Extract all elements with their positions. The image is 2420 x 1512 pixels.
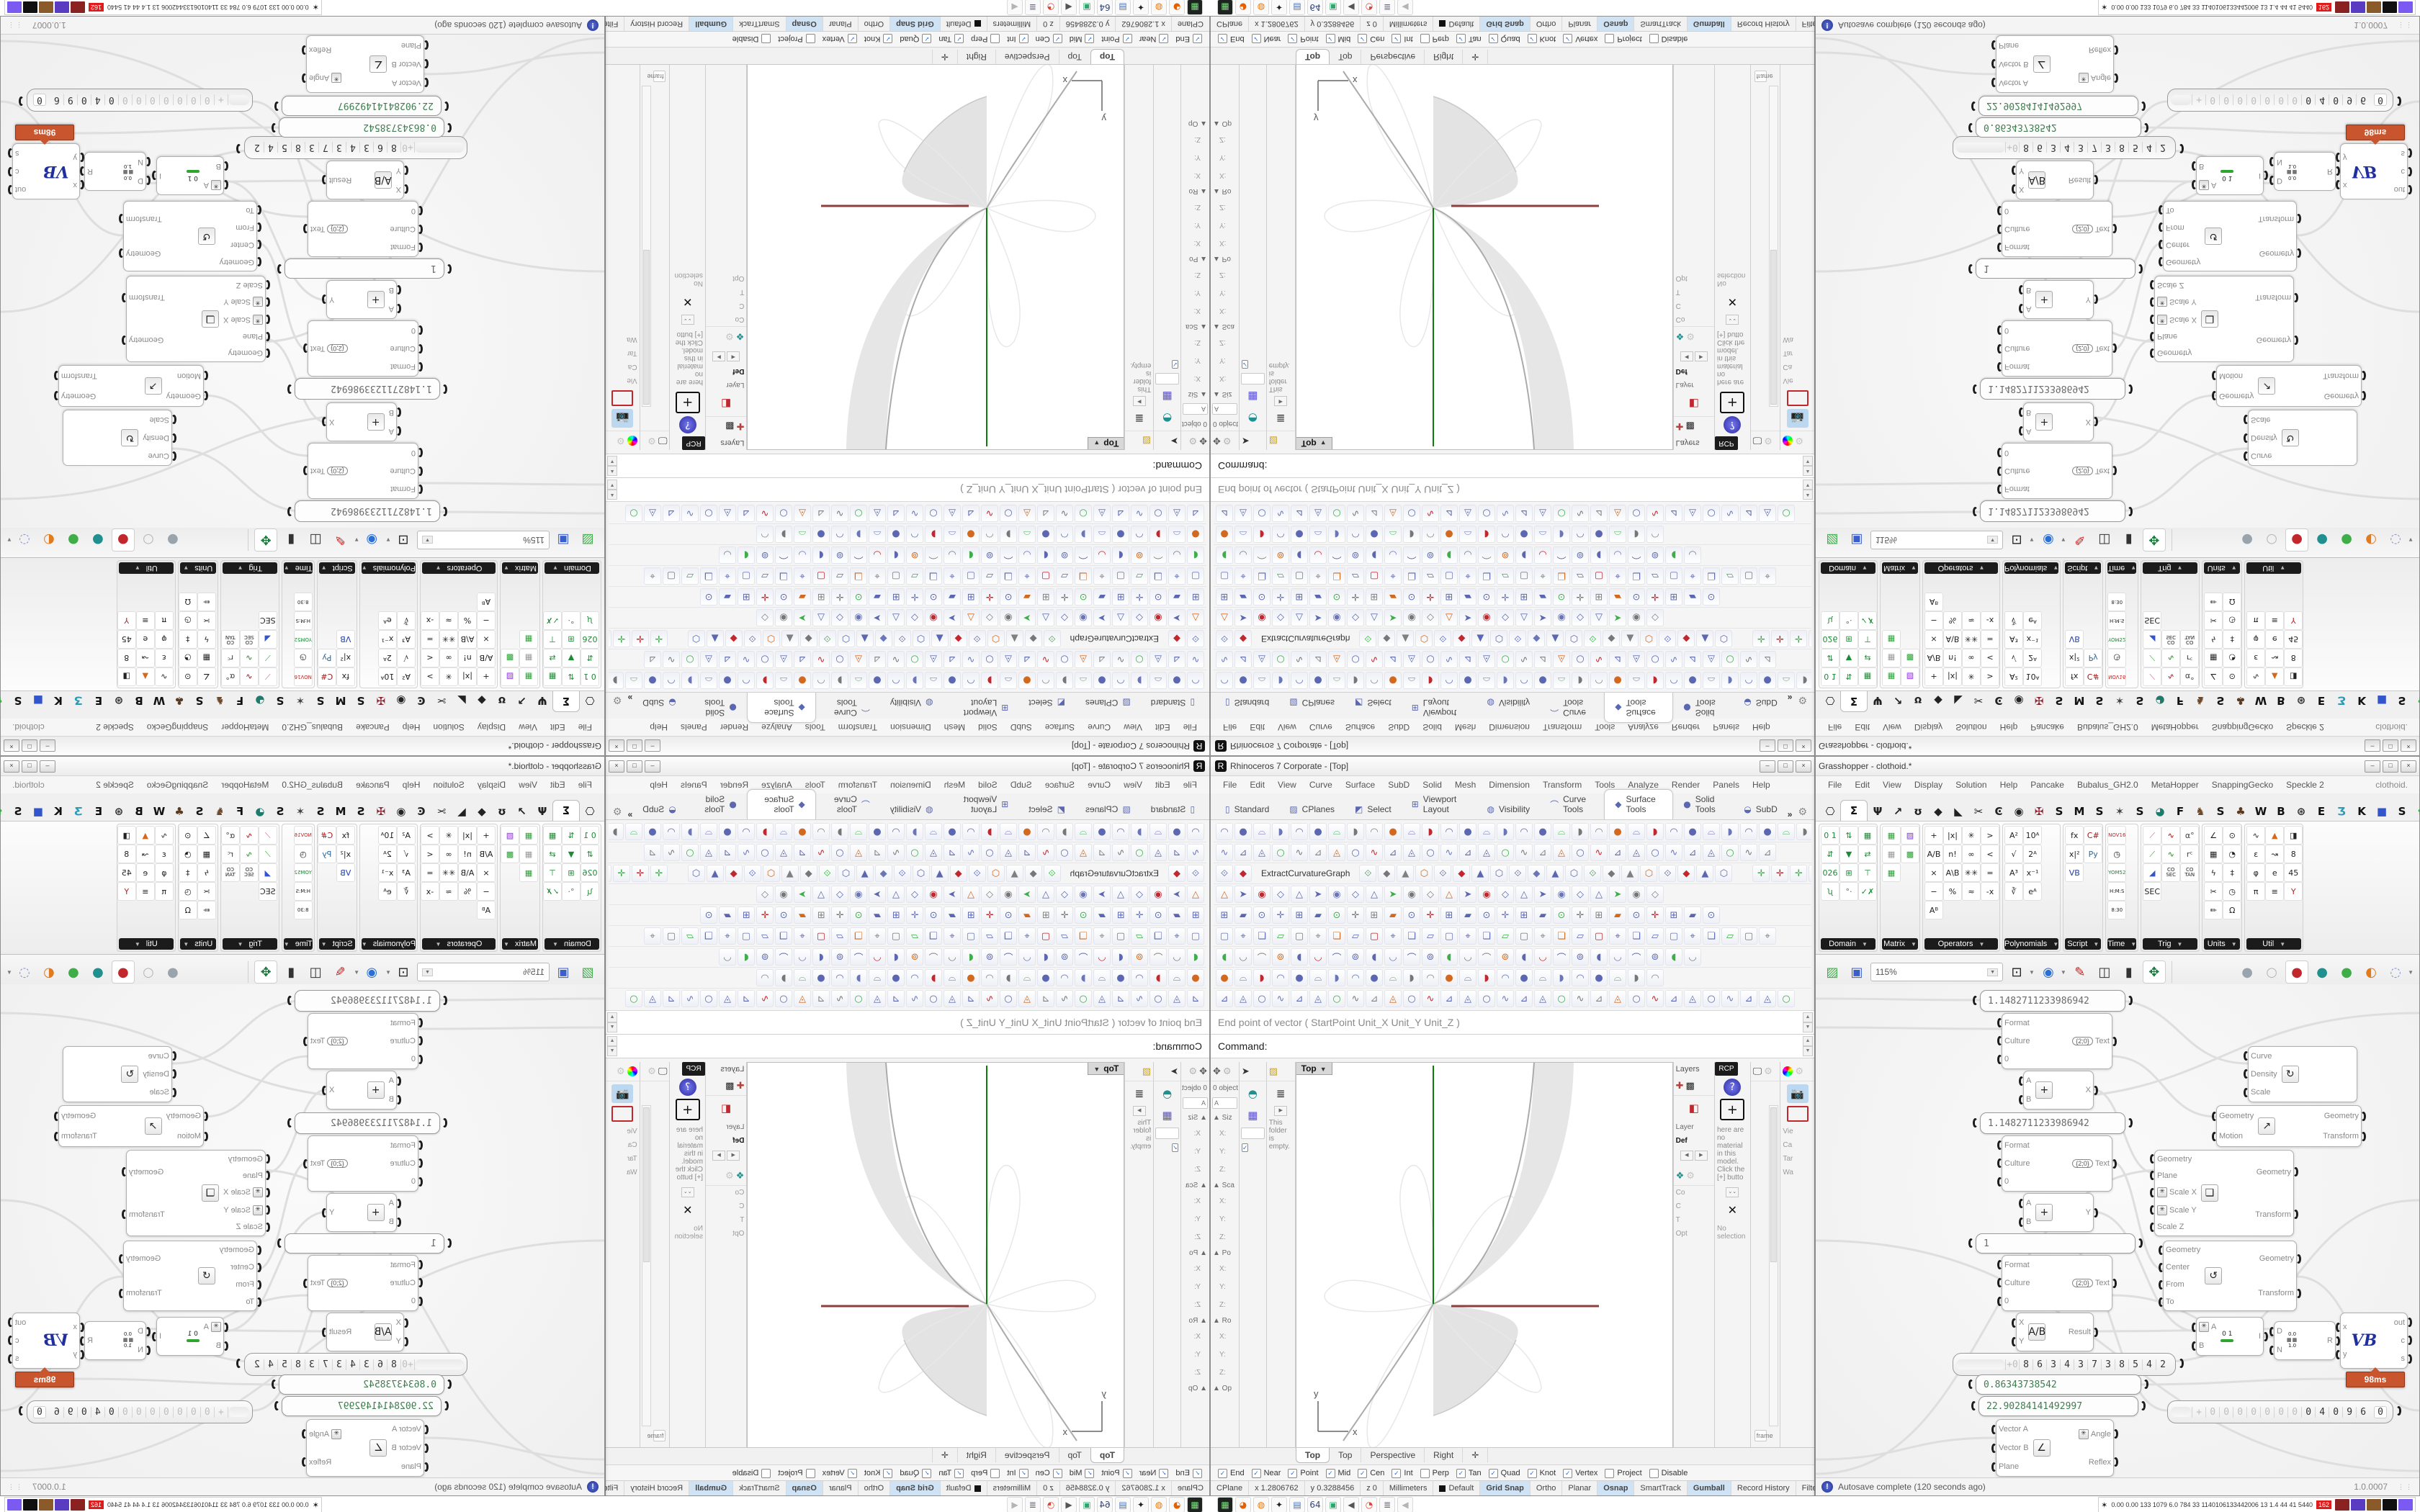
osnap-end[interactable]: ✓End xyxy=(1175,35,1202,44)
gh-tab-5[interactable]: ◆ xyxy=(472,691,492,710)
toolbar-icon[interactable]: ◡ xyxy=(1093,948,1111,966)
toolbar-icon[interactable]: ∿ xyxy=(812,651,830,668)
component-icon[interactable]: A\B xyxy=(1943,863,1962,882)
axis-field-y[interactable]: Y: xyxy=(1181,1143,1209,1161)
toolbar-icon[interactable]: ⊙ xyxy=(1403,588,1420,606)
learn-checkbox[interactable]: ✓ xyxy=(1172,1143,1179,1152)
toolbar-icon[interactable]: ✛ xyxy=(1347,588,1364,606)
toolbar-icon[interactable]: ◖ xyxy=(1112,948,1129,966)
component-icon[interactable]: ✳✳ xyxy=(439,863,458,882)
toolbar-icon[interactable]: △ xyxy=(887,886,905,903)
toolbar-icon[interactable]: ◬ xyxy=(1018,505,1036,522)
gh-tab-28[interactable]: S xyxy=(2392,691,2412,710)
toolbar-icon[interactable]: ∿ xyxy=(887,651,905,668)
component-icon[interactable]: fx xyxy=(2065,667,2084,686)
toolbar-icon[interactable]: ● xyxy=(1309,823,1327,840)
taskbar-app-firefox[interactable]: ◕ xyxy=(1235,0,1251,15)
toolbar-icon[interactable]: ◆ xyxy=(1453,865,1470,882)
toolbar-icon[interactable]: ◡ xyxy=(1609,546,1626,564)
toolbar-icon[interactable]: ● xyxy=(1590,526,1608,543)
gh-tab-1[interactable]: Σ xyxy=(552,691,580,712)
open-file-button[interactable]: ▨ xyxy=(577,961,599,983)
component-icon[interactable]: ≡ xyxy=(2265,882,2284,901)
toolbar-icon[interactable]: ◬ xyxy=(719,990,736,1007)
toolbar-icon[interactable]: ▢ xyxy=(663,927,680,945)
component-icon[interactable]: ▦ xyxy=(1858,667,1877,686)
component-icon[interactable]: Y xyxy=(117,882,136,901)
toolbar-icon[interactable]: ▱ xyxy=(1056,927,1073,945)
ribbon-group-label[interactable]: Units▼ xyxy=(2204,562,2240,574)
component-icon[interactable]: √ xyxy=(2004,649,2023,667)
component-icon[interactable]: ▦ xyxy=(2204,845,2223,863)
toolbar-icon[interactable]: ▲ xyxy=(856,630,874,647)
component-icon[interactable]: A² xyxy=(2004,667,2023,686)
toolbar-icon[interactable]: ● xyxy=(1168,672,1186,689)
toolbar-icon[interactable]: ❏ xyxy=(1703,927,1720,945)
component-icon[interactable]: ▦ xyxy=(519,826,538,845)
axis-field-z[interactable]: Z: xyxy=(1181,1364,1209,1382)
toolbar-icon[interactable]: ● xyxy=(1093,823,1111,840)
gh-tab-17[interactable]: F xyxy=(2170,802,2190,821)
gh-tab-1[interactable]: Σ xyxy=(1840,691,1868,712)
toolbar-icon[interactable]: ⌓ xyxy=(1093,969,1111,986)
toolbar-icon[interactable]: ⊞ xyxy=(1216,588,1233,606)
toolbar-icon[interactable]: ∿ xyxy=(1037,844,1054,861)
toolbar-icon[interactable]: ◗ xyxy=(756,823,774,840)
toolbar-icon[interactable]: ⟐ xyxy=(1216,630,1233,647)
component-icon[interactable]: − xyxy=(477,611,496,630)
toolbar-icon[interactable]: ◗ xyxy=(681,823,699,840)
osnap-vertex[interactable]: ✓Vertex xyxy=(1563,35,1597,44)
toolbar-icon[interactable]: ◇ xyxy=(981,609,998,626)
toolbar-icon[interactable]: ⌓ xyxy=(1609,969,1626,986)
osnap-end[interactable]: ✓End xyxy=(1175,1469,1202,1478)
menu-item-speckle-2[interactable]: Speckle 2 xyxy=(2280,778,2331,792)
toolbar-icon[interactable]: ⌓ xyxy=(700,672,717,689)
component-icon[interactable]: ⊤ xyxy=(1858,863,1877,882)
toolbar-icon[interactable]: ⊿ xyxy=(1187,990,1204,1007)
toolbar-icon[interactable]: ❏ xyxy=(1628,927,1645,945)
component-icon[interactable]: A\B xyxy=(458,630,477,649)
toolbar-icon[interactable]: ❏ xyxy=(1478,567,1495,585)
toolbar-icon[interactable]: ◗ xyxy=(1131,823,1148,840)
toolbar-icon[interactable]: ⌓ xyxy=(1309,526,1327,543)
toolbar-icon[interactable]: ➤ xyxy=(944,609,961,626)
toolbar-icon[interactable]: ▲ xyxy=(1397,630,1414,647)
toolbar-icon[interactable]: ◬ xyxy=(1093,505,1111,522)
component-icon[interactable]: Aᴮ xyxy=(1924,901,1943,919)
toolbar-icon[interactable]: ⟐ xyxy=(819,865,836,882)
toolbar-icon[interactable]: ◗ xyxy=(1796,672,1811,689)
status-gumball[interactable]: Gumball xyxy=(689,1481,732,1495)
toolbar-icon[interactable]: ◆ xyxy=(1528,865,1545,882)
toolbar-icon[interactable]: ⌓ xyxy=(1609,526,1626,543)
status-smarttrack[interactable]: SmartTrack xyxy=(1634,1481,1687,1495)
axis-field-y[interactable]: Y: xyxy=(1211,1210,1239,1228)
toolbar-icon[interactable]: ⊙ xyxy=(1628,906,1645,924)
component-icon[interactable]: π xyxy=(2246,611,2265,630)
component-icon[interactable]: > xyxy=(1981,667,1999,686)
toolbar-icon[interactable]: ○ xyxy=(1646,844,1664,861)
component-icon[interactable]: ↝ xyxy=(2265,649,2284,667)
toolbar-icon[interactable]: ⌒ xyxy=(1553,948,1570,966)
toolbar-icon[interactable]: ⌖ xyxy=(1093,567,1111,585)
toolbar-icon[interactable]: ⊚ xyxy=(906,948,923,966)
toolbar-icon[interactable]: ○ xyxy=(1478,990,1495,1007)
toolbar-icon[interactable]: ◖ xyxy=(1440,948,1458,966)
toolbar-icon[interactable]: ◗ xyxy=(1347,823,1364,840)
component-icon[interactable]: YOM52 xyxy=(2107,863,2126,882)
component-icon[interactable]: ⟋ xyxy=(259,667,277,686)
toolbar-icon[interactable]: ◡ xyxy=(1234,948,1252,966)
component-icon[interactable]: 45 xyxy=(2284,863,2303,882)
taskbar-app-gimp[interactable]: ✦ xyxy=(1133,0,1149,15)
toolbar-icon[interactable]: ⊞ xyxy=(1187,588,1204,606)
toolbar-icon[interactable]: ∿ xyxy=(1056,505,1073,522)
viewport-tab-perspective[interactable]: Perspective xyxy=(995,50,1059,64)
toolbar-icon[interactable]: ▰ xyxy=(1309,906,1327,924)
axis-field-x[interactable]: X: xyxy=(1181,1125,1209,1143)
component-icon[interactable]: 8:30 xyxy=(294,901,313,919)
toolbar-icon[interactable]: ● xyxy=(1534,672,1551,689)
component-icon[interactable]: ▦ xyxy=(197,649,216,667)
axis-field-z[interactable]: Z: xyxy=(1211,333,1239,351)
toolbar-icon[interactable]: ◆ xyxy=(1603,865,1620,882)
osnap-mid[interactable]: ✓Mid xyxy=(1326,35,1351,44)
help-icon[interactable]: ? xyxy=(1724,1079,1741,1096)
ribbon-group-label[interactable]: Operators▼ xyxy=(422,938,496,950)
ribbon-group-label[interactable]: Time▼ xyxy=(284,938,313,950)
toolbar-icon[interactable]: ◡ xyxy=(944,948,961,966)
toolbar-icon[interactable]: ◗ xyxy=(850,969,867,986)
gh-tab-7[interactable]: ✂ xyxy=(431,802,452,821)
component-icon[interactable]: ◢ xyxy=(2143,863,2161,882)
toolbar-icon[interactable]: ◠ xyxy=(1131,526,1148,543)
toolbar-icon[interactable]: △ xyxy=(812,609,830,626)
toolbar-icon[interactable]: ● xyxy=(1366,969,1383,986)
maximize-button[interactable]: □ xyxy=(22,760,37,773)
toolbar-icon[interactable]: ◡ xyxy=(1459,546,1476,564)
component-icon[interactable]: % xyxy=(458,611,477,630)
gh-tab-28[interactable]: S xyxy=(2392,802,2412,821)
toolbar-icon[interactable]: ● xyxy=(1216,969,1233,986)
component-icon[interactable]: − xyxy=(1924,611,1943,630)
taskbar-app-chrome[interactable]: ◔ xyxy=(1043,1497,1059,1512)
toolbar-icon[interactable]: ⟐ xyxy=(1187,865,1204,882)
gh-tab-22[interactable]: B xyxy=(2271,691,2291,710)
toolbar-icon[interactable]: ▢ xyxy=(663,567,680,585)
cplane-icon[interactable]: ✛ xyxy=(609,865,611,882)
toolbar-icon[interactable]: ◬ xyxy=(1384,990,1402,1007)
section-siz[interactable]: ▲ Siz xyxy=(1211,387,1239,401)
toolbar-icon[interactable]: ⌒ xyxy=(1149,948,1167,966)
toolbar-icon[interactable]: ○ xyxy=(925,505,942,522)
toolbar-icon[interactable]: ⊙ xyxy=(1553,906,1570,924)
extract-curvature-graph-button[interactable]: ExtractCurvatureGraph xyxy=(1065,867,1165,880)
toolbar-icon[interactable]: ✛ xyxy=(1056,906,1073,924)
toolbar-icon[interactable]: ◗ xyxy=(1553,526,1570,543)
toolbar-icon[interactable]: ⊿ xyxy=(1018,844,1036,861)
toolbar-icon[interactable]: ◬ xyxy=(1253,651,1270,668)
preview-off-button[interactable]: ● xyxy=(2236,961,2258,983)
toolbar-icon[interactable]: ◬ xyxy=(1684,505,1701,522)
toolbar-icon[interactable]: ⬡ xyxy=(1490,630,1507,647)
component-icon[interactable]: ▨ xyxy=(501,667,519,686)
help-icon[interactable]: ? xyxy=(679,1079,696,1096)
toolbar-icon[interactable]: ▰ xyxy=(719,906,736,924)
menu-item-pancake[interactable]: Pancake xyxy=(349,778,396,792)
component-icon[interactable]: 45 xyxy=(117,863,136,882)
status-osnap[interactable]: Osnap xyxy=(1597,17,1634,31)
toolbar-icon[interactable]: ▢ xyxy=(1440,567,1458,585)
toolbar-icon[interactable]: ⌓ xyxy=(1075,672,1092,689)
toolbar-icon[interactable]: ◗ xyxy=(1646,672,1664,689)
component-icon[interactable]: Ω xyxy=(179,593,197,611)
status-planar[interactable]: Planar xyxy=(1562,1481,1597,1495)
menu-item-panels[interactable]: Panels xyxy=(1706,720,1746,734)
component-icon[interactable]: ▦ xyxy=(1882,826,1901,845)
axes-widget-button[interactable]: ✥ xyxy=(2143,528,2166,552)
component-icon[interactable]: ◔ xyxy=(179,649,197,667)
component-icon[interactable]: ‡ xyxy=(179,863,197,882)
toolbar-icon[interactable]: ▲ xyxy=(1397,865,1414,882)
menu-item-view[interactable]: View xyxy=(512,778,544,792)
menu-item-panels[interactable]: Panels xyxy=(674,720,714,734)
section-po[interactable]: ▲ Po xyxy=(1181,252,1209,266)
expression-star-button[interactable]: ✳ xyxy=(2199,1322,2209,1332)
status-grid-snap[interactable]: Grid Snap xyxy=(1480,1481,1531,1495)
gh-tab-3[interactable]: ↗ xyxy=(512,802,532,821)
component-icon[interactable]: C# xyxy=(2084,667,2102,686)
gh-panel-node[interactable]: 0.86343738542 xyxy=(1976,1374,2141,1395)
toolbar-icon[interactable]: ⌓ xyxy=(1534,526,1551,543)
gh-tab-7[interactable]: ✂ xyxy=(1968,691,1989,710)
toolbar-icon[interactable]: ∿ xyxy=(1590,651,1608,668)
toolbar-icon[interactable]: ◬ xyxy=(1534,505,1551,522)
toolbar-icon[interactable]: ▢ xyxy=(1740,927,1757,945)
layers-next-button[interactable]: ▶ xyxy=(1695,1151,1708,1161)
toolbar-icon[interactable]: ⌓ xyxy=(1328,823,1345,840)
gear-icon[interactable]: ⚙ xyxy=(1223,436,1232,446)
toolbar-icon[interactable]: ◆ xyxy=(800,865,817,882)
toolbar-icon[interactable]: ◠ xyxy=(756,526,774,543)
taskbar-app-audio-muted[interactable]: ◀ xyxy=(1007,0,1023,15)
axis-field-z[interactable]: Z: xyxy=(1211,130,1239,148)
toolbar-icon[interactable]: ▱ xyxy=(681,927,699,945)
cplane-icon[interactable]: ✛ xyxy=(1752,865,1770,882)
osnap-tan[interactable]: ✓Tan xyxy=(1456,1469,1482,1478)
toolbar-icon[interactable]: ○ xyxy=(1478,505,1495,522)
command-prompt-scrollbar[interactable]: ▲▼ xyxy=(607,456,617,476)
gh-component-node[interactable]: CurveDensityScale↻ xyxy=(63,1046,172,1102)
component-icon[interactable]: ✏ xyxy=(2204,593,2223,611)
close-button[interactable]: × xyxy=(4,740,19,752)
preview-green-button[interactable]: ● xyxy=(2336,529,2357,551)
toolbar-icon[interactable]: ◡ xyxy=(1093,546,1111,564)
toolbar-icon[interactable]: ▢ xyxy=(812,567,830,585)
axis-field-y[interactable]: Y: xyxy=(1181,284,1209,302)
toolbar-icon[interactable]: ○ xyxy=(681,844,699,861)
toolbar-icon[interactable]: ◠ xyxy=(906,526,923,543)
toolbar-icon[interactable]: ⊞ xyxy=(738,906,755,924)
toolbar-icon[interactable]: △ xyxy=(1187,886,1204,903)
toolbar-icon[interactable]: ▰ xyxy=(944,906,961,924)
gh-tab-26[interactable]: K xyxy=(48,802,68,821)
toolbar-icon[interactable]: ⌖ xyxy=(1459,927,1476,945)
toolbar-icon[interactable]: ◬ xyxy=(1384,505,1402,522)
toolbar-icon[interactable]: ◠ xyxy=(1366,672,1383,689)
component-icon[interactable]: ∿ xyxy=(2161,845,2180,863)
viewport-title[interactable]: Top▼ xyxy=(1088,437,1124,449)
toolbar-icon[interactable]: ◬ xyxy=(1000,651,1017,668)
gh-tab-19[interactable]: S xyxy=(2210,691,2231,710)
component-icon[interactable]: rᶜ xyxy=(2180,649,2199,667)
toolbar-icon[interactable]: ● xyxy=(1759,672,1776,689)
gh-component-node[interactable]: FormatCulture0{2;0}Text xyxy=(2002,443,2112,499)
gh-component-node[interactable]: CurveDensityScale↻ xyxy=(63,410,172,466)
toolbar-icon[interactable]: ➤ xyxy=(1168,886,1186,903)
component-icon[interactable]: ↝ xyxy=(2265,845,2284,863)
toolbar-icon[interactable]: ◗ xyxy=(775,969,792,986)
toolbar-icon[interactable]: ∿ xyxy=(1347,990,1364,1007)
toolbar-icon[interactable]: ⌒ xyxy=(1328,546,1345,564)
toolbar-icon[interactable]: ⌒ xyxy=(775,948,792,966)
toolbar-icon[interactable]: ◡ xyxy=(1384,546,1402,564)
toolbar-icon[interactable]: ∿ xyxy=(1515,651,1533,668)
toolbar-icon[interactable]: ⊿ xyxy=(794,844,811,861)
toolbar-icon[interactable]: ◆ xyxy=(1453,630,1470,647)
menu-item-display[interactable]: Display xyxy=(471,720,512,734)
toolbar-icon[interactable]: △ xyxy=(1590,609,1608,626)
status-x-1-2806762[interactable]: x 1.2806762 xyxy=(1249,1481,1305,1495)
toolbar-icon[interactable]: ◠ xyxy=(1440,823,1458,840)
toolbar-icon[interactable]: ▱ xyxy=(981,567,998,585)
toolbar-icon[interactable]: ◠ xyxy=(1740,672,1757,689)
osnap-point[interactable]: ✓Point xyxy=(1288,1469,1318,1478)
gh-panel-node[interactable]: 0.86343738542 xyxy=(279,1374,444,1395)
component-icon[interactable]: 8 xyxy=(117,649,136,667)
toolbar-icon[interactable]: ⌒ xyxy=(1000,948,1017,966)
toolbar-icon[interactable]: ⌖ xyxy=(1234,927,1252,945)
component-icon[interactable]: < xyxy=(1981,649,1999,667)
toolbar-icon[interactable]: ◠ xyxy=(812,823,830,840)
gh-component-node[interactable]: AB+Y xyxy=(326,1193,397,1232)
toolbar-icon[interactable]: ○ xyxy=(1778,505,1795,522)
toolbar-icon[interactable]: ▢ xyxy=(1187,927,1204,945)
toolbar-icon[interactable]: ◡ xyxy=(1684,948,1701,966)
close-button[interactable]: × xyxy=(2401,740,2416,752)
toolbar-icon[interactable]: ∿ xyxy=(962,651,980,668)
command-history-scrollbar[interactable]: ▲▼ xyxy=(607,1012,617,1032)
rectangle-icon[interactable] xyxy=(1787,1106,1809,1122)
toolbar-icon[interactable]: ⌖ xyxy=(869,567,886,585)
component-icon[interactable]: + xyxy=(477,826,496,845)
toolbar-icon[interactable]: ⊙ xyxy=(1075,588,1092,606)
toolbar-icon[interactable]: ⌓ xyxy=(1168,969,1186,986)
minimize-button[interactable]: – xyxy=(2365,760,2380,773)
menu-item-file[interactable]: File xyxy=(572,720,599,734)
toolbar-icon[interactable]: ◇ xyxy=(1131,886,1148,903)
toolbar-icon[interactable]: ◗ xyxy=(1056,823,1073,840)
preview-half-button[interactable]: ◐ xyxy=(2360,529,2382,551)
menu-item-help[interactable]: Help xyxy=(643,720,674,734)
toolbar-icon[interactable]: ○ xyxy=(906,844,923,861)
toolbar-icon[interactable]: ➤ xyxy=(944,886,961,903)
gh-panel-node[interactable]: 1.1482711233986942 xyxy=(1980,990,2125,1012)
toolbar-icon[interactable]: ⊿ xyxy=(944,844,961,861)
expression-star-button[interactable]: ✳ xyxy=(2157,1205,2167,1215)
section-sca[interactable]: ▲ Sca xyxy=(1181,1179,1209,1192)
toolbar-icon[interactable]: ⊞ xyxy=(1291,588,1308,606)
component-icon[interactable]: Aᴮ xyxy=(477,593,496,611)
taskbar-app-screen-capture[interactable]: ▣ xyxy=(1325,1497,1341,1512)
toolbar-icon[interactable]: ◉ xyxy=(1000,886,1017,903)
component-icon[interactable]: ⟋ xyxy=(2143,826,2161,845)
toolbar-icon[interactable]: ◗ xyxy=(1131,672,1148,689)
gh-tab-15[interactable]: S xyxy=(270,802,290,821)
component-icon[interactable]: ∠ xyxy=(197,667,216,686)
ribbon-group-label[interactable]: Operators▼ xyxy=(1924,938,1998,950)
axis-field-z[interactable]: Z: xyxy=(1211,266,1239,284)
preview-off-button[interactable]: ● xyxy=(162,961,184,983)
gh-tab-20[interactable]: ♣ xyxy=(169,802,189,821)
osnap-int[interactable]: ✓Int xyxy=(1007,35,1028,44)
gh-tab-8[interactable]: Ͼ xyxy=(1989,802,2009,821)
gh-canvas[interactable]: 1.1482711233986942FormatCulture0{2;0}Tex… xyxy=(1,984,604,1478)
gear-icon[interactable]: ⚙ xyxy=(647,436,656,446)
display-scrollbar[interactable] xyxy=(642,86,651,407)
component-icon[interactable]: × xyxy=(1924,630,1943,649)
toolbar-icon[interactable]: ◉ xyxy=(1253,886,1270,903)
toolbar-icon[interactable]: ➤ xyxy=(794,886,811,903)
component-icon[interactable]: ◷ xyxy=(294,845,313,863)
component-icon[interactable]: ▨ xyxy=(1901,667,1919,686)
gh-component-node[interactable]: ✳AB0 1I xyxy=(2196,156,2264,195)
toolbar-icon[interactable]: ⌓ xyxy=(1628,672,1645,689)
viewport-top[interactable]: Top▼ xyxy=(1296,1062,1673,1448)
toolbar-icon[interactable]: ✛ xyxy=(756,588,774,606)
toolbar-icon[interactable]: ◉ xyxy=(1478,609,1495,626)
component-icon[interactable]: fx xyxy=(336,826,355,845)
toolbar-icon[interactable]: ○ xyxy=(756,844,774,861)
toolbar-icon[interactable]: ○ xyxy=(1553,505,1570,522)
toolbar-icon[interactable]: ⌖ xyxy=(1384,567,1402,585)
component-icon[interactable]: ✏ xyxy=(197,901,216,919)
minimize-button[interactable]: – xyxy=(1760,760,1775,773)
collapse-chevrons[interactable]: ⌄⌄ xyxy=(1726,1187,1739,1197)
component-icon[interactable]: ✏ xyxy=(2204,901,2223,919)
expand-arrow[interactable]: ▶ xyxy=(1133,396,1146,406)
toolbar-icon[interactable]: ∿ xyxy=(1440,844,1458,861)
toolbar-icon[interactable]: ⊞ xyxy=(1515,588,1533,606)
gh-component-node[interactable]: DN0.0▦▦1.0R xyxy=(2274,152,2336,191)
toolbar-icon[interactable]: ▢ xyxy=(1366,567,1383,585)
tab-visibility[interactable]: ◍Visibility xyxy=(1476,800,1540,819)
toolbar-icon[interactable]: ⌖ xyxy=(869,927,886,945)
toolbar-icon[interactable]: ◠ xyxy=(812,672,830,689)
toolbar-icon[interactable]: ◠ xyxy=(663,823,680,840)
osnap-disable[interactable]: Disable xyxy=(1649,35,1688,44)
toolbar-icon[interactable]: ⊞ xyxy=(1515,906,1533,924)
component-icon[interactable]: x|² xyxy=(2065,649,2084,667)
ribbon-group-label[interactable]: Time▼ xyxy=(2107,562,2136,574)
component-icon[interactable]: ⊙ xyxy=(2223,826,2241,845)
axis-field-z[interactable]: Z: xyxy=(1181,333,1209,351)
menu-item-bubalus-gh2-0[interactable]: Bubalus_GH2.0 xyxy=(2071,778,2145,792)
stereo-view-button[interactable]: ◫ xyxy=(2094,529,2115,551)
menu-item-surface[interactable]: Surface xyxy=(1039,720,1081,734)
boxedit-value-field[interactable]: A xyxy=(1183,403,1208,415)
